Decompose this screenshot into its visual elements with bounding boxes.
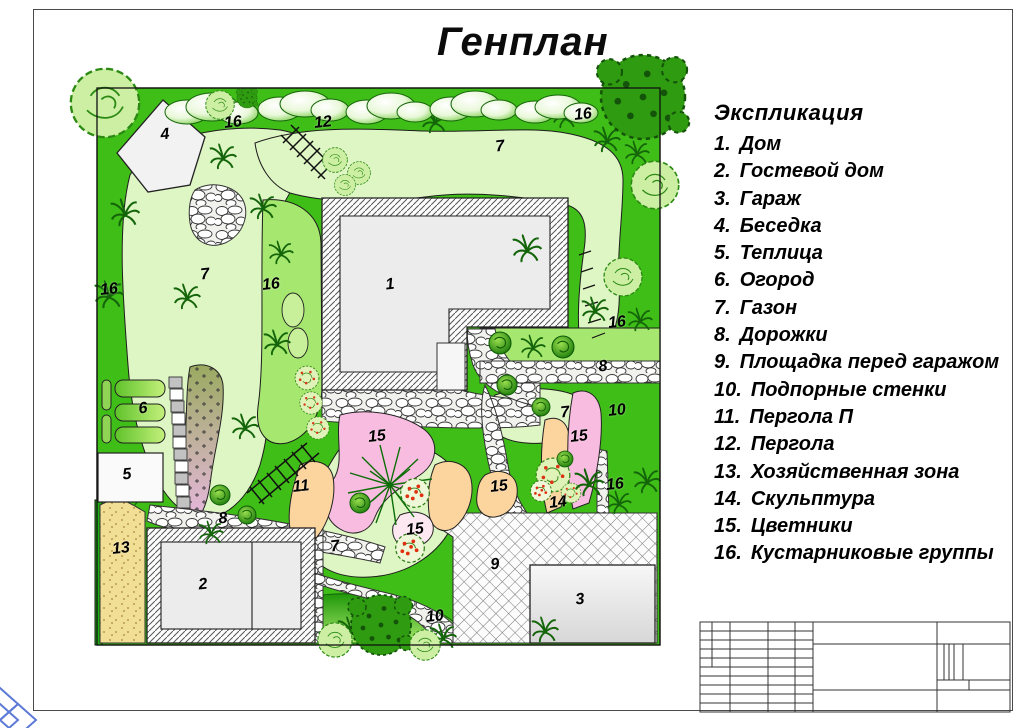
garage-3 <box>530 565 655 643</box>
legend-item: 16.Кустарниковые группы <box>714 540 1016 567</box>
legend-items: 1.Дом 2.Гостевой дом 3.Гараж 4.Беседка 5… <box>714 131 1016 568</box>
legend-item: 9.Площадка перед гаражом <box>714 349 1016 376</box>
legend-item: 6.Огород <box>714 267 1016 294</box>
site-plan-canvas <box>95 85 670 670</box>
legend-item: 13.Хозяйственная зона <box>714 459 1016 486</box>
legend-item: 7.Газон <box>714 295 1016 322</box>
legend-item: 11.Пергола П <box>714 404 1016 431</box>
legend-item: 10.Подпорные стенки <box>714 377 1016 404</box>
legend-item: 14.Скульптура <box>714 486 1016 513</box>
legend-item: 15.Цветники <box>714 513 1016 540</box>
title-block <box>697 617 1013 715</box>
legend-item: 12.Пергола <box>714 431 1016 458</box>
page-title: Генплан <box>437 20 609 65</box>
utility-zone <box>95 492 145 645</box>
legend-title: Экспликация <box>714 100 1016 126</box>
blue-lattice-icon <box>0 684 46 728</box>
legend-item: 1.Дом <box>714 131 1016 158</box>
legend-item: 4.Беседка <box>714 213 1016 240</box>
legend-item: 3.Гараж <box>714 186 1016 213</box>
legend: Экспликация 1.Дом 2.Гостевой дом 3.Гараж… <box>714 100 1016 568</box>
site-plan <box>95 85 670 670</box>
guest-house-2 <box>147 528 315 643</box>
legend-item: 5.Теплица <box>714 240 1016 267</box>
legend-item: 8.Дорожки <box>714 322 1016 349</box>
greenhouse-5 <box>98 453 163 502</box>
legend-item: 2.Гостевой дом <box>714 158 1016 185</box>
